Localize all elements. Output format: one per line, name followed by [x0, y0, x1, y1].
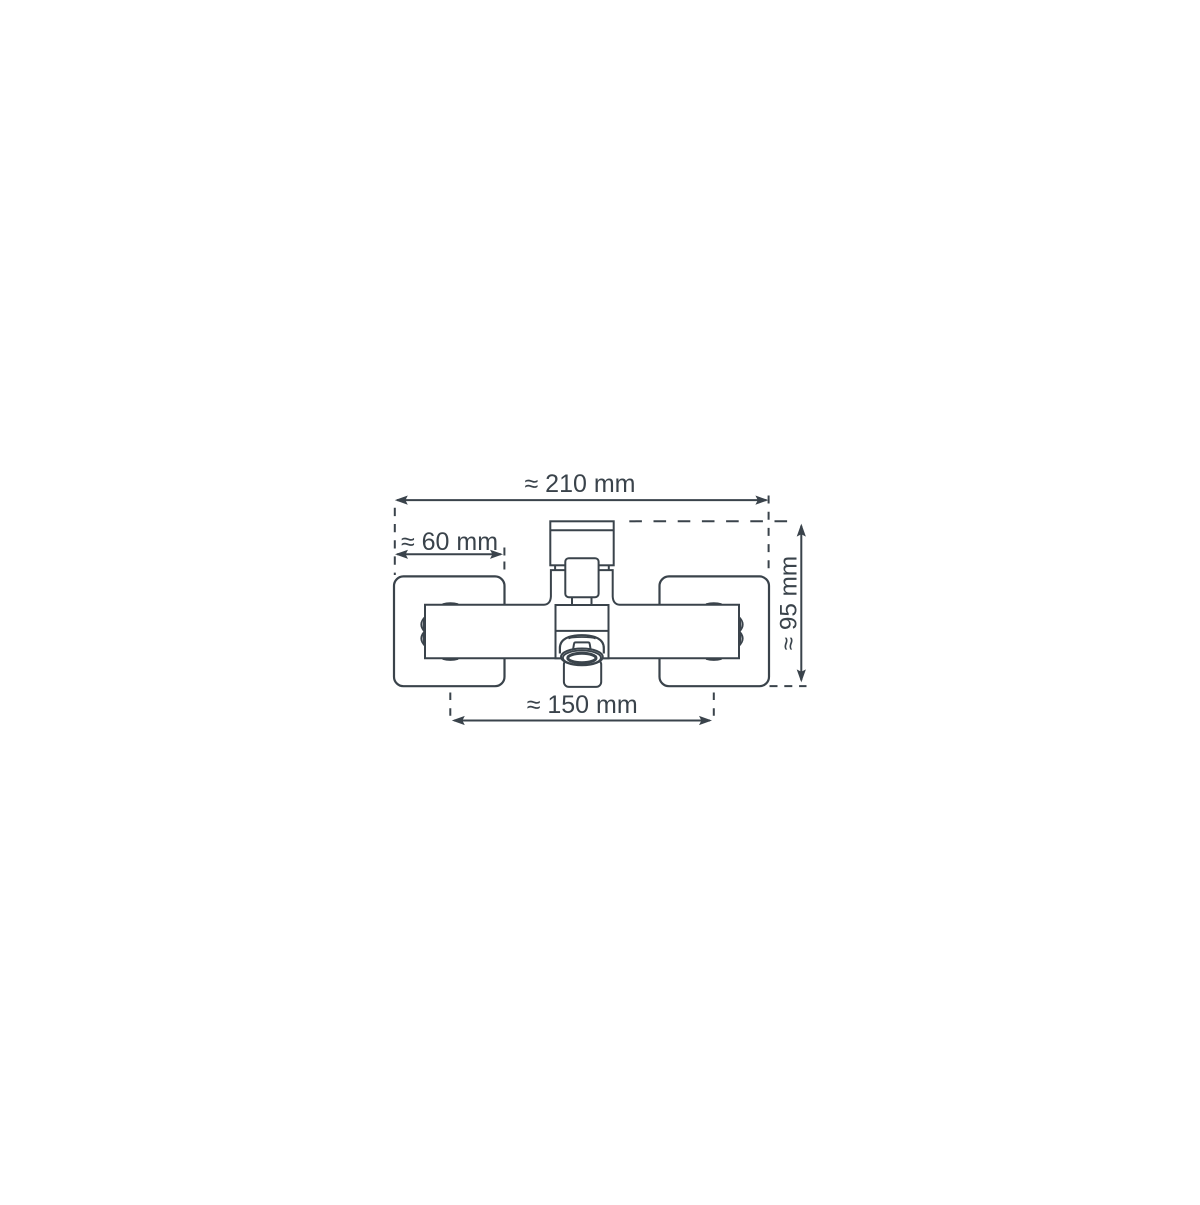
- svg-text:≈ 150 mm: ≈ 150 mm: [527, 691, 638, 719]
- svg-text:≈ 95 mm: ≈ 95 mm: [776, 556, 803, 650]
- svg-text:≈ 60 mm: ≈ 60 mm: [401, 528, 498, 556]
- svg-text:≈ 210 mm: ≈ 210 mm: [525, 470, 636, 498]
